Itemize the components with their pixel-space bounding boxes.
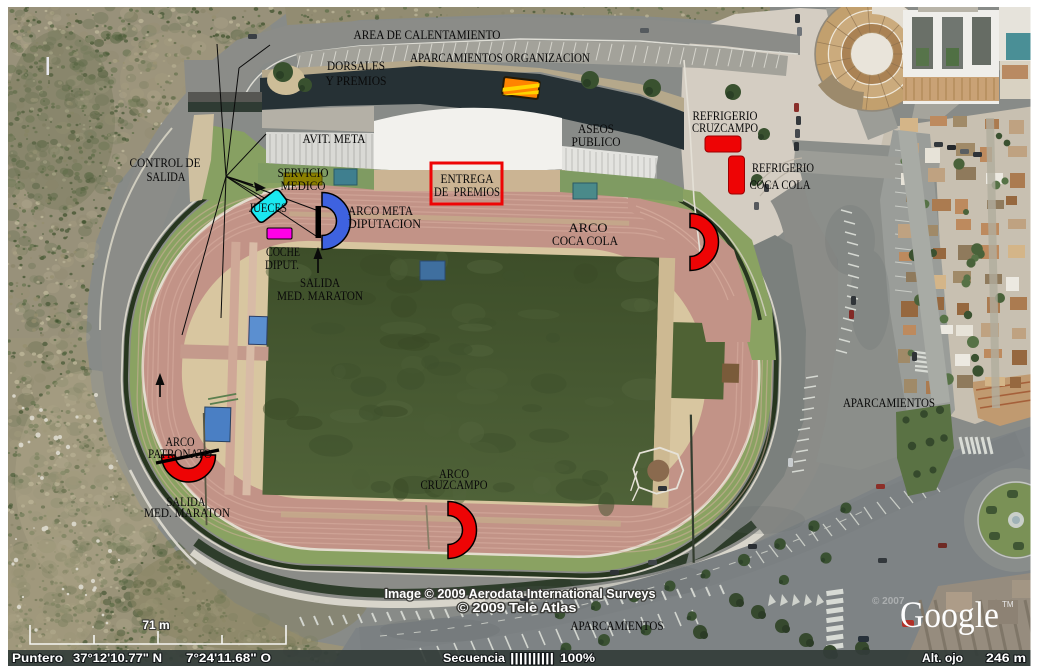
svg-text:APARCAMIENTOS: APARCAMIENTOS: [843, 396, 935, 410]
svg-text:DIPUTACION: DIPUTACION: [348, 217, 421, 231]
svg-text:PATRONATO: PATRONATO: [148, 447, 212, 461]
svg-text:CRUZCAMPO: CRUZCAMPO: [692, 121, 758, 135]
svg-text:© 2009 Tele Atlas: © 2009 Tele Atlas: [458, 601, 577, 615]
svg-text:Secuencia: Secuencia: [443, 653, 506, 665]
svg-text:TM: TM: [1002, 600, 1014, 609]
svg-text:Google: Google: [900, 595, 999, 636]
svg-text:PUBLICO: PUBLICO: [572, 135, 621, 149]
svg-text:Alt. ojo: Alt. ojo: [922, 653, 963, 665]
svg-text:DIPUT.: DIPUT.: [265, 258, 299, 272]
svg-text:APARCAMIENTOS ORGANIZACION: APARCAMIENTOS ORGANIZACION: [410, 51, 590, 65]
svg-text:Puntero: Puntero: [12, 653, 63, 665]
svg-text:JUECES: JUECES: [249, 201, 287, 215]
svg-text:APARCAMIENTOS: APARCAMIENTOS: [571, 619, 664, 633]
svg-text:MED. MARATON: MED. MARATON: [144, 506, 230, 520]
svg-text:||||||||||: ||||||||||: [510, 653, 554, 665]
svg-text:DE PREMIOS: DE PREMIOS: [434, 185, 500, 199]
svg-text:SALIDA: SALIDA: [300, 276, 340, 290]
svg-text:37°12'10.77" N: 37°12'10.77" N: [73, 653, 162, 665]
svg-text:246 m: 246 m: [986, 653, 1026, 665]
svg-text:COCA COLA: COCA COLA: [552, 234, 618, 248]
svg-text:7°24'11.68" O: 7°24'11.68" O: [186, 653, 271, 665]
svg-text:Image © 2009 Aerodata Internat: Image © 2009 Aerodata International Surv…: [385, 587, 656, 601]
svg-text:ARCO: ARCO: [569, 221, 608, 235]
svg-text:SALIDA: SALIDA: [147, 170, 186, 184]
svg-text:ARCO META: ARCO META: [348, 204, 413, 218]
svg-text:COCA COLA: COCA COLA: [750, 178, 811, 192]
svg-text:MEDICO: MEDICO: [281, 179, 326, 193]
svg-text:ASEOS: ASEOS: [578, 122, 614, 136]
svg-text:SERVICIO: SERVICIO: [278, 166, 329, 180]
svg-text:Y PREMIOS: Y PREMIOS: [326, 74, 387, 88]
svg-text:REFRIGERIO: REFRIGERIO: [752, 161, 814, 175]
svg-text:100%: 100%: [560, 653, 595, 665]
svg-text:COCHE: COCHE: [266, 245, 300, 259]
svg-text:71 m: 71 m: [142, 618, 169, 632]
svg-text:CONTROL DE: CONTROL DE: [130, 156, 201, 170]
svg-text:AVIT. META: AVIT. META: [303, 132, 366, 146]
svg-text:DORSALES: DORSALES: [327, 59, 385, 73]
svg-text:AREA DE CALENTAMIENTO: AREA DE CALENTAMIENTO: [354, 28, 501, 42]
svg-text:MED. MARATON: MED. MARATON: [277, 289, 363, 303]
svg-text:ENTREGA: ENTREGA: [441, 172, 494, 186]
svg-text:CRUZCAMPO: CRUZCAMPO: [421, 478, 488, 492]
